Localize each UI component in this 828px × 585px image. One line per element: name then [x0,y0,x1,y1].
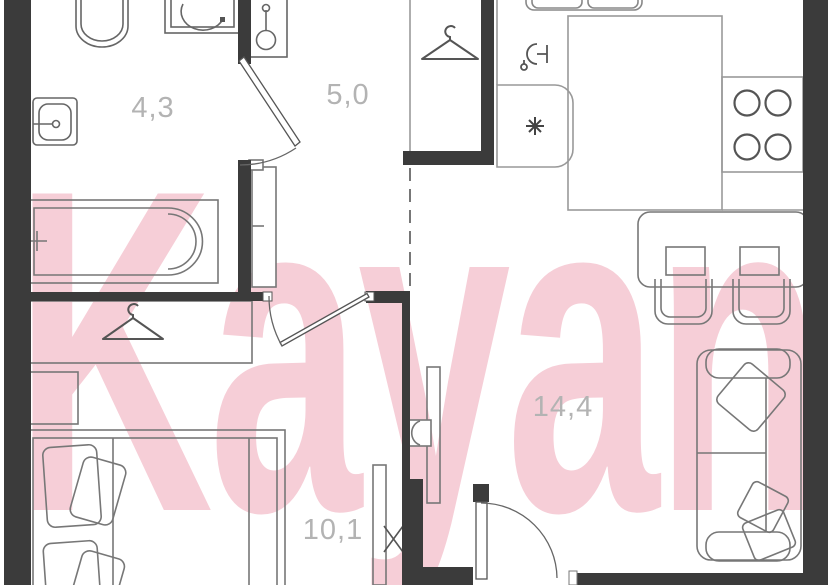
floor-plan: Kayan [0,0,828,585]
clothes-hanger-icon [422,26,478,59]
wall-wardrobe-bottom [403,151,494,165]
outer-wall-left [4,0,31,585]
toilet-icon [76,0,128,47]
wall-bathroom-upper [238,0,251,64]
bathtub-icon [23,200,218,283]
dining-chair [655,279,712,324]
dining-table [638,212,808,287]
bathroom-area-label: 4,3 [108,92,198,125]
kitchen-counter [568,16,722,210]
wall-bottom-left [402,567,473,585]
wall-lamp-icon [248,0,287,57]
nightstand [23,372,78,424]
door-panel [249,160,276,287]
outer-wall-right [803,0,828,585]
wall-partition-upper [402,293,410,481]
dining-chair [733,279,790,324]
wall-entry-nub [473,484,489,502]
snowflake-icon [526,117,544,135]
wall-wardrobe-right [481,0,494,165]
hallway-door [263,292,369,346]
washing-machine-icon [165,0,240,33]
wall-partition-lower [402,479,423,568]
kitchen-living-area-label: 14,4 [518,391,608,424]
walls-layer [4,0,828,585]
washbasin-icon [33,98,77,145]
double-bed [25,430,285,585]
wall-bathroom-bottom [28,292,264,301]
kitchen-sink-icon [526,0,642,10]
clothes-hanger-icon [103,304,163,339]
glassware-icon [521,44,547,70]
floor-plan-drawing [0,0,828,585]
entry-door [476,502,577,585]
sofa [697,349,801,562]
door-swing-arc [269,296,282,346]
hallway-closet [26,301,252,363]
bedroom-area-label: 10,1 [288,514,378,547]
wall-bathroom-lower [238,160,251,293]
door-swing-arc [481,503,557,578]
wall-bottom-right [575,573,803,585]
hallway-area-label: 5,0 [303,79,393,112]
sliding-door-mark-icon [384,526,403,552]
stove-burners-icon [722,77,803,172]
